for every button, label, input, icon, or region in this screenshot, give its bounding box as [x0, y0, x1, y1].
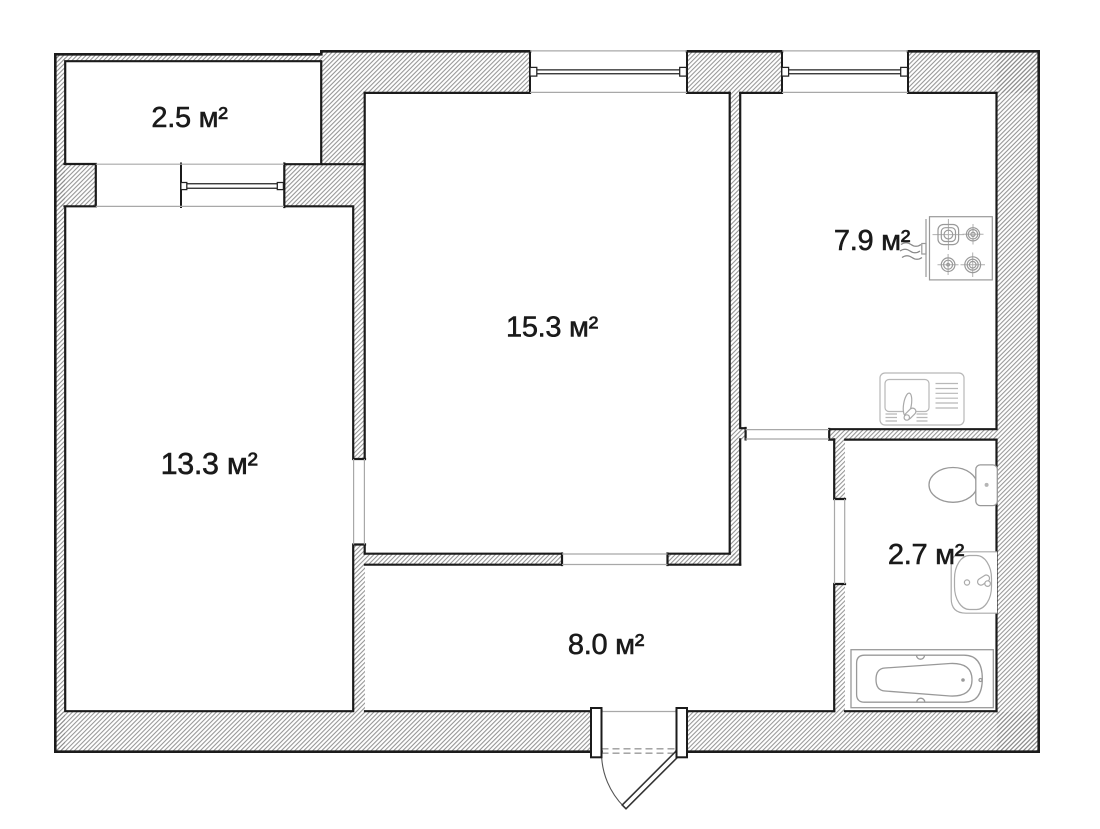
- svg-text:7.9 м²: 7.9 м²: [834, 225, 911, 257]
- svg-text:8.0 м²: 8.0 м²: [568, 629, 645, 661]
- svg-text:13.3 м²: 13.3 м²: [161, 447, 258, 481]
- svg-text:15.3 м²: 15.3 м²: [506, 312, 599, 344]
- svg-text:2.7 м²: 2.7 м²: [888, 539, 965, 571]
- svg-text:2.5 м²: 2.5 м²: [151, 102, 228, 134]
